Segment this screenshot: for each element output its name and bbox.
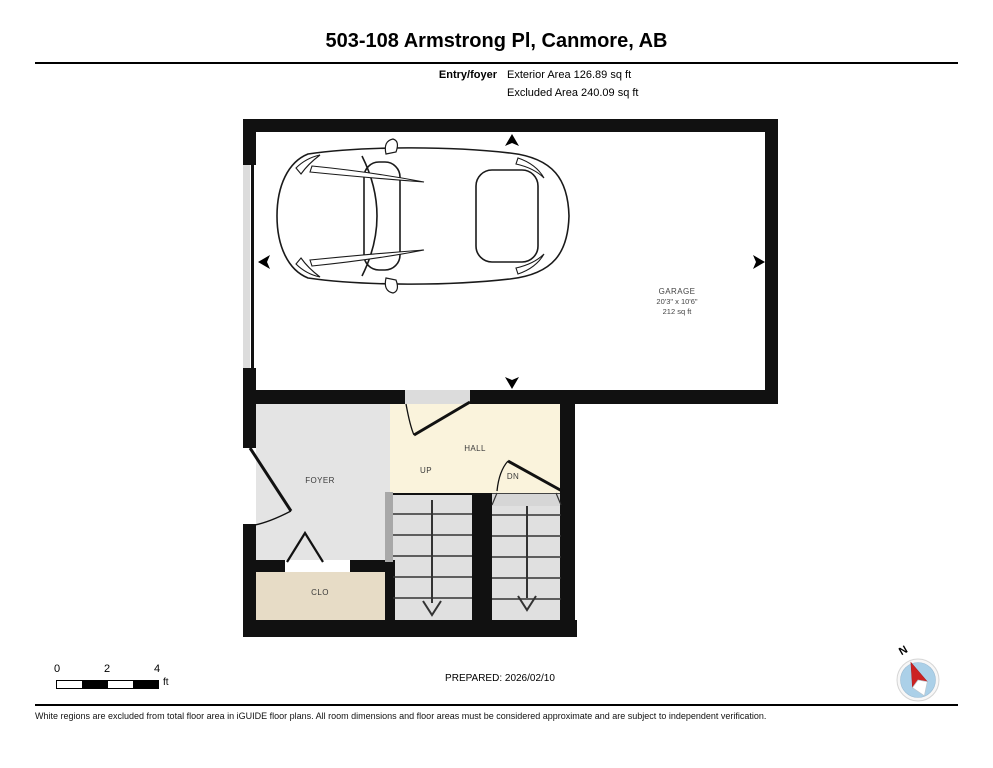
plan-linework bbox=[0, 0, 993, 768]
direction-arrow-up bbox=[505, 134, 519, 146]
scale-bar bbox=[56, 680, 159, 689]
scale-bar-segment bbox=[133, 681, 158, 688]
floorplan-sheet: 503-108 Armstrong Pl, Canmore, AB Entry/… bbox=[0, 0, 993, 768]
room-label-hall: HALL bbox=[445, 444, 505, 453]
direction-arrow-down bbox=[505, 377, 519, 389]
direction-arrow-left bbox=[258, 255, 270, 269]
stairs-up-label: UP bbox=[406, 466, 446, 475]
stairs-arrow bbox=[423, 601, 441, 615]
garage-area: 212 sq ft bbox=[617, 307, 737, 317]
stairs-down-label: DN bbox=[493, 472, 533, 481]
stairs-down-treads bbox=[492, 493, 561, 610]
north-label: N bbox=[897, 644, 910, 658]
stairs-arrow bbox=[518, 596, 536, 610]
room-label-closet: CLO bbox=[280, 588, 360, 597]
compass-icon: N bbox=[890, 638, 946, 704]
garage-name: GARAGE bbox=[617, 287, 737, 297]
direction-arrow-right bbox=[753, 255, 765, 269]
garage-dimensions: 20'3" x 10'6" bbox=[617, 297, 737, 307]
prepared-date-label: PREPARED: 2026/02/10 bbox=[400, 673, 600, 684]
door-swing-entry bbox=[249, 448, 291, 526]
door-swing-garage bbox=[406, 402, 470, 435]
scale-bar-segment bbox=[82, 681, 107, 688]
scale-tick-4: 4 bbox=[150, 663, 164, 675]
scale-tick-0: 0 bbox=[50, 663, 64, 675]
scale-tick-2: 2 bbox=[100, 663, 114, 675]
bifold-door-closet bbox=[287, 533, 323, 562]
room-label-garage: GARAGE 20'3" x 10'6" 212 sq ft bbox=[617, 287, 737, 317]
footer-divider bbox=[35, 704, 958, 706]
car-icon bbox=[277, 139, 569, 293]
scale-unit-label: ft bbox=[163, 677, 169, 688]
room-label-foyer: FOYER bbox=[280, 476, 360, 485]
stairs-up-treads bbox=[393, 500, 472, 615]
disclaimer-text: White regions are excluded from total fl… bbox=[35, 711, 975, 721]
